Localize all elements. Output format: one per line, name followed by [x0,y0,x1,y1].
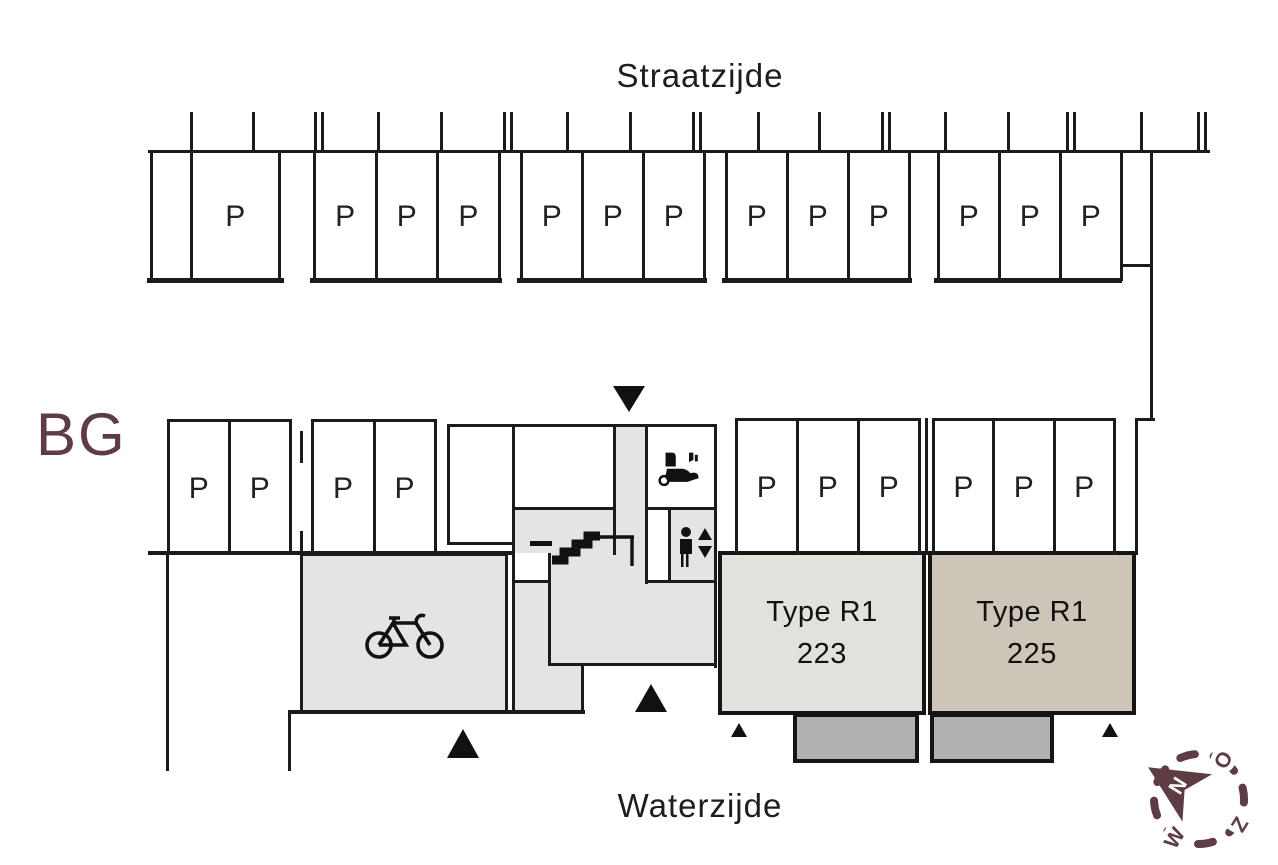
parking-stall: P [375,153,437,281]
parking-group: PPP [725,150,911,281]
wall-segment [288,710,585,714]
wall-segment [300,531,303,553]
parking-stall: P [725,153,786,281]
entrance-triangle-up [635,684,667,712]
parking-group: PP [311,419,437,555]
compass-west-label: W [1160,824,1190,853]
parking-stall: P [796,421,857,555]
wall-segment [166,553,169,771]
parking-stall-label: P [808,200,829,234]
wall-segment [314,112,317,153]
wall-segment [548,663,717,666]
parking-stall: P [313,153,375,281]
wall-segment [300,431,303,463]
parking-stall: P [520,153,581,281]
parking-stall: P [311,422,373,555]
parking-stall: P [847,153,908,281]
parking-group: PP [167,419,292,555]
street-side-label: Straatzijde [450,57,950,95]
mobility-scooter-icon [656,448,700,488]
wall-segment [1135,418,1155,421]
parking-stall: P [373,422,435,555]
wall-segment [645,580,717,583]
wall-segment [288,713,291,771]
parking-stall-label: P [1074,471,1095,505]
wall-segment [447,542,514,545]
wall-segment [512,507,616,510]
wall-segment [888,112,891,153]
parking-group: P [190,150,281,281]
wall-segment [513,580,551,583]
parking-stall-label: P [394,472,415,506]
unit-number-label: 225 [1007,633,1057,675]
wall-segment [503,112,506,153]
wall-segment [645,424,648,584]
parking-stall: P [932,421,992,555]
parking-stall-label: P [1081,200,1102,234]
parking-group: PPP [937,150,1123,281]
parking-stall-label: P [664,200,685,234]
parking-stall: P [992,421,1052,555]
parking-stall-label: P [333,472,354,506]
elevator-icon [678,526,714,570]
wall-segment [1150,150,1153,420]
bicycle-icon [364,606,446,660]
wall-segment [512,424,515,555]
wall-segment [1140,112,1143,153]
terrace-223 [793,713,919,763]
parking-stall: P [190,153,278,281]
wall-segment [699,112,702,153]
wall-segment [1007,112,1010,153]
wall-segment [447,424,717,427]
wall-segment [1204,112,1207,153]
parking-stall: P [735,421,796,555]
parking-stall: P [436,153,498,281]
parking-stall: P [167,422,228,555]
entrance-triangle-down [613,386,645,412]
unit-223[interactable]: Type R1 223 [718,551,926,715]
wall-segment [629,112,632,153]
wall-segment [190,112,193,153]
parking-stall-label: P [189,472,210,506]
parking-stall-label: P [747,200,768,234]
parking-group: PPP [735,418,921,555]
parking-stall-label: P [397,200,418,234]
parking-stall-label: P [542,200,563,234]
wall-segment [757,112,760,153]
parking-stall: P [937,153,998,281]
stairs-icon [528,516,640,576]
parking-stall-label: P [818,471,839,505]
wall-segment [440,112,443,153]
parking-stall: P [642,153,703,281]
floor-label: BG [36,400,127,469]
wall-segment [321,112,324,153]
parking-stall: P [998,153,1059,281]
wall-segment [692,112,695,153]
terrace-225 [930,713,1054,763]
unit-type-label: Type R1 [976,591,1088,633]
parking-stall: P [1053,421,1113,555]
wall-segment [1135,418,1138,555]
wall-segment [1122,264,1150,267]
wall-segment [447,424,450,545]
parking-stall-label: P [1020,200,1041,234]
unit-type-label: Type R1 [766,591,878,633]
entrance-triangle-small [731,723,747,737]
unit-225[interactable]: Type R1 225 [928,551,1136,715]
parking-stall: P [857,421,918,555]
parking-stall: P [1059,153,1120,281]
wall-segment [566,112,569,153]
parking-stall-label: P [959,200,980,234]
compass-icon: N O Z W [1138,735,1260,861]
hall-strip [513,663,583,712]
wall-segment [581,663,584,713]
wall-segment [252,112,255,153]
wall-segment [881,112,884,153]
shaft-room [645,507,670,583]
wall-segment [818,112,821,153]
wall-segment [1066,112,1069,153]
wall-segment [645,507,717,510]
wall-segment [1197,112,1200,153]
wall-segment [150,150,153,281]
parking-stall-label: P [335,200,356,234]
parking-group: PPP [932,418,1116,555]
water-side-label: Waterzijde [450,787,950,825]
wall-segment [925,418,928,555]
parking-stall-label: P [603,200,624,234]
parking-stall-label: P [1014,471,1035,505]
parking-group: PPP [520,150,706,281]
wall-segment [377,112,380,153]
wall-segment [668,507,671,583]
parking-stall: P [228,422,289,555]
wall-segment [944,112,947,153]
parking-group: PPP [313,150,501,281]
wall-segment [510,112,513,153]
entrance-triangle-small [1102,723,1118,737]
wall-segment [714,424,717,668]
wall-segment [512,553,515,713]
floor-plan: Straatzijde Waterzijde BG Type R1 223 Ty… [0,0,1278,865]
parking-stall-label: P [879,471,900,505]
parking-stall-label: P [953,471,974,505]
entrance-triangle-up [447,729,479,758]
parking-stall-label: P [757,471,778,505]
parking-stall: P [786,153,847,281]
unit-number-label: 223 [797,633,847,675]
parking-stall-label: P [225,200,246,234]
parking-stall-label: P [250,472,271,506]
parking-stall-label: P [458,200,479,234]
parking-stall: P [581,153,642,281]
parking-stall-label: P [869,200,890,234]
wall-segment [1073,112,1076,153]
